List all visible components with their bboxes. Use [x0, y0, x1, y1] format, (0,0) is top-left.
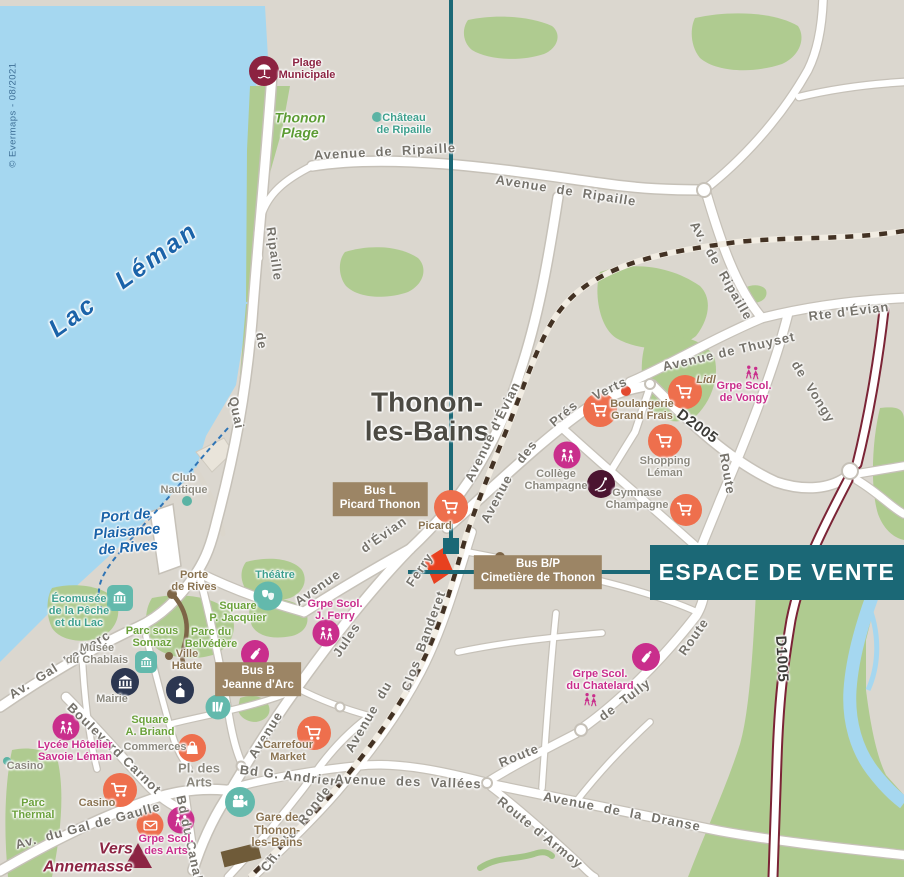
casino-dot: [3, 757, 11, 765]
nursery-chatelard-icon[interactable]: [632, 643, 660, 671]
casino-cart-icon[interactable]: [103, 773, 137, 807]
college-champagne-icon[interactable]: [554, 442, 581, 469]
boulangerie-dot: [621, 386, 631, 396]
club-nautique-dot: [182, 496, 192, 506]
bus-stop-picard-thonon[interactable]: Bus L Picard Thonon: [333, 482, 428, 516]
lidl-cart-icon[interactable]: [668, 375, 702, 409]
store-cart-icon[interactable]: [670, 494, 702, 526]
theatre-icon[interactable]: [254, 582, 283, 611]
sales-office-banner[interactable]: ESPACE DE VENTE: [650, 545, 904, 600]
school-des-arts-icon[interactable]: [168, 807, 195, 834]
porte-de-rives-dot: [167, 589, 177, 599]
school-chatelard-icon[interactable]: [577, 686, 604, 713]
bus-stop-cimetiere[interactable]: Bus B/P Cimetière de Thonon: [474, 555, 602, 589]
ecomusee-icon[interactable]: [107, 585, 133, 611]
cinema-icon[interactable]: [225, 787, 255, 817]
gymnase-icon[interactable]: [587, 470, 615, 498]
shopping-leman-cart-icon[interactable]: [648, 424, 682, 458]
grand-frais-cart-icon[interactable]: [583, 393, 617, 427]
library-icon[interactable]: [206, 695, 231, 720]
shops-bag-icon[interactable]: [178, 734, 206, 762]
picard-cart-icon[interactable]: [434, 490, 468, 524]
church-icon[interactable]: [166, 676, 194, 704]
mairie-icon[interactable]: [111, 668, 139, 696]
carrefour-cart-icon[interactable]: [297, 716, 331, 750]
post-office-icon[interactable]: [137, 812, 164, 839]
school-vongy-icon[interactable]: [738, 358, 766, 386]
beach-umbrella-icon[interactable]: [249, 56, 279, 86]
bus-stop-jeanne-darc[interactable]: Bus B Jeanne d'Arc: [215, 662, 301, 696]
school-jferry-icon[interactable]: [313, 620, 340, 647]
map-canvas: Bus L Picard ThononBus B Jeanne d'ArcBus…: [0, 0, 904, 877]
lycee-hotelier-icon[interactable]: [53, 714, 80, 741]
map-copyright: © Evermaps - 08/2021: [8, 62, 19, 167]
musee-chablais-icon[interactable]: [135, 651, 157, 673]
ville-haute-dot: [165, 652, 173, 660]
chateau-dot: [372, 112, 382, 122]
map-graphics: [0, 0, 904, 877]
